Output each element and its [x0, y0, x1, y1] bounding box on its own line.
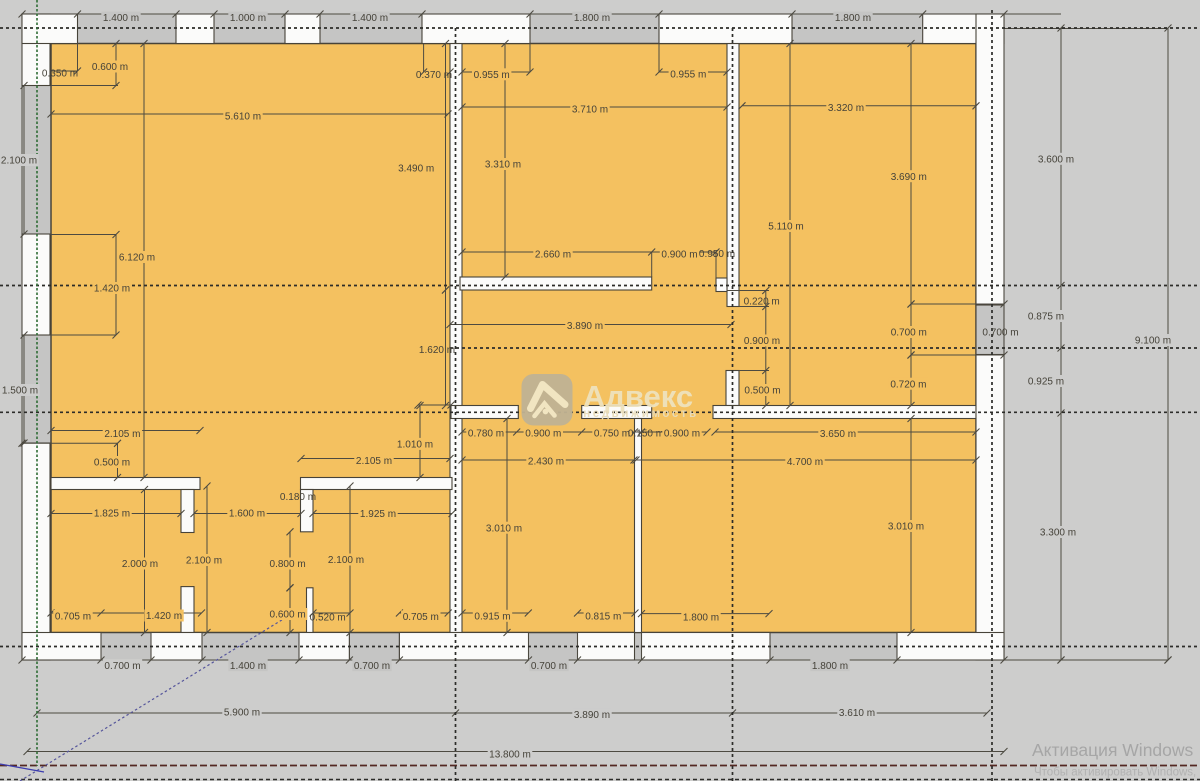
- svg-text:3.320 m: 3.320 m: [828, 103, 864, 114]
- svg-text:1.925 m: 1.925 m: [360, 509, 396, 520]
- svg-text:0.700 m: 0.700 m: [531, 661, 567, 672]
- svg-text:3.710 m: 3.710 m: [572, 104, 608, 115]
- svg-text:3.010 m: 3.010 m: [888, 522, 924, 533]
- svg-text:3.600 m: 3.600 m: [1038, 154, 1074, 165]
- svg-text:0.700 m: 0.700 m: [891, 328, 927, 339]
- svg-text:3.890 m: 3.890 m: [567, 321, 603, 332]
- svg-text:1.420 m: 1.420 m: [94, 284, 130, 295]
- svg-text:0.700 m: 0.700 m: [104, 661, 140, 672]
- svg-text:9.100 m: 9.100 m: [1135, 336, 1171, 347]
- svg-text:1.500 m: 1.500 m: [2, 386, 38, 397]
- svg-text:1.800 m: 1.800 m: [812, 661, 848, 672]
- svg-text:0.900 m: 0.900 m: [664, 429, 700, 440]
- svg-text:3.300 m: 3.300 m: [1040, 528, 1076, 539]
- svg-text:0.600 m: 0.600 m: [270, 610, 306, 621]
- svg-text:0.875 m: 0.875 m: [1028, 312, 1064, 323]
- svg-text:0.150 m: 0.150 m: [628, 429, 664, 440]
- svg-text:1.400 m: 1.400 m: [352, 13, 388, 24]
- svg-text:3.010 m: 3.010 m: [486, 523, 522, 534]
- svg-text:0.500 m: 0.500 m: [94, 458, 130, 469]
- svg-text:1.400 m: 1.400 m: [230, 661, 266, 672]
- svg-text:0.700 m: 0.700 m: [354, 661, 390, 672]
- svg-text:13.800 m: 13.800 m: [489, 750, 531, 761]
- svg-text:2.430 m: 2.430 m: [528, 457, 564, 468]
- svg-text:0.500 m: 0.500 m: [744, 386, 780, 397]
- svg-text:0.800 m: 0.800 m: [270, 559, 306, 570]
- svg-text:0.950 m: 0.950 m: [699, 249, 735, 260]
- svg-text:0.955 m: 0.955 m: [670, 70, 706, 81]
- svg-text:2.100 m: 2.100 m: [328, 555, 364, 566]
- svg-text:0.220 m: 0.220 m: [744, 296, 780, 307]
- svg-text:4.700 m: 4.700 m: [787, 457, 823, 468]
- svg-text:1.600 m: 1.600 m: [229, 509, 265, 520]
- svg-text:0.780 m: 0.780 m: [468, 429, 504, 440]
- svg-text:0.720 m: 0.720 m: [890, 379, 926, 390]
- svg-text:5.110 m: 5.110 m: [768, 222, 803, 233]
- svg-text:1.825 m: 1.825 m: [94, 509, 130, 520]
- svg-text:1.420 m: 1.420 m: [146, 611, 182, 622]
- svg-text:0.815 m: 0.815 m: [585, 611, 621, 622]
- svg-text:0.955 m: 0.955 m: [474, 70, 510, 81]
- svg-text:1.800 m: 1.800 m: [683, 613, 719, 624]
- svg-text:0.750 m: 0.750 m: [594, 429, 630, 440]
- svg-text:5.610 m: 5.610 m: [225, 112, 261, 123]
- svg-text:0.900 m: 0.900 m: [525, 429, 561, 440]
- svg-text:Чтобы активировать Windows, пе: Чтобы активировать Windows, перейдите в …: [1034, 767, 1200, 779]
- svg-text:0.915 m: 0.915 m: [474, 611, 510, 622]
- svg-text:3.890 m: 3.890 m: [574, 710, 610, 721]
- svg-text:1.010 m: 1.010 m: [397, 440, 433, 451]
- svg-text:3.310 m: 3.310 m: [485, 160, 521, 171]
- svg-text:0.705 m: 0.705 m: [403, 612, 439, 623]
- svg-text:0.520 m: 0.520 m: [310, 613, 346, 624]
- svg-text:0.925 m: 0.925 m: [1028, 377, 1064, 388]
- svg-text:3.650 m: 3.650 m: [820, 429, 856, 440]
- svg-text:0.700 m: 0.700 m: [982, 328, 1018, 339]
- svg-text:0.705 m: 0.705 m: [55, 612, 91, 623]
- svg-text:1.800 m: 1.800 m: [835, 13, 871, 24]
- svg-text:2.660 m: 2.660 m: [535, 250, 571, 261]
- svg-text:0.900 m: 0.900 m: [661, 250, 697, 261]
- svg-text:1.800 m: 1.800 m: [574, 13, 610, 24]
- svg-text:3.610 m: 3.610 m: [839, 708, 875, 719]
- svg-text:1.620 m: 1.620 m: [419, 345, 455, 356]
- svg-text:2.100 m: 2.100 m: [1, 156, 37, 167]
- svg-text:недвижимость: недвижимость: [583, 408, 699, 420]
- svg-text:0.370 m: 0.370 m: [416, 70, 452, 81]
- svg-text:1.400 m: 1.400 m: [103, 13, 139, 24]
- svg-text:0.350 m: 0.350 m: [42, 68, 78, 79]
- svg-text:1.000 m: 1.000 m: [230, 13, 266, 24]
- svg-text:2.100 m: 2.100 m: [186, 556, 222, 567]
- svg-text:0.900 m: 0.900 m: [744, 336, 780, 347]
- svg-text:5.900 m: 5.900 m: [224, 708, 260, 719]
- svg-text:0.600 m: 0.600 m: [92, 62, 128, 73]
- svg-text:6.120 m: 6.120 m: [119, 253, 155, 264]
- svg-text:2.105 m: 2.105 m: [356, 456, 392, 467]
- svg-text:0.180 m: 0.180 m: [280, 492, 316, 503]
- svg-text:3.490 m: 3.490 m: [398, 164, 434, 175]
- svg-text:2.105 m: 2.105 m: [104, 429, 140, 440]
- svg-text:Активация Windows: Активация Windows: [1032, 740, 1194, 760]
- svg-text:2.000 m: 2.000 m: [122, 559, 158, 570]
- svg-text:3.690 m: 3.690 m: [891, 172, 927, 183]
